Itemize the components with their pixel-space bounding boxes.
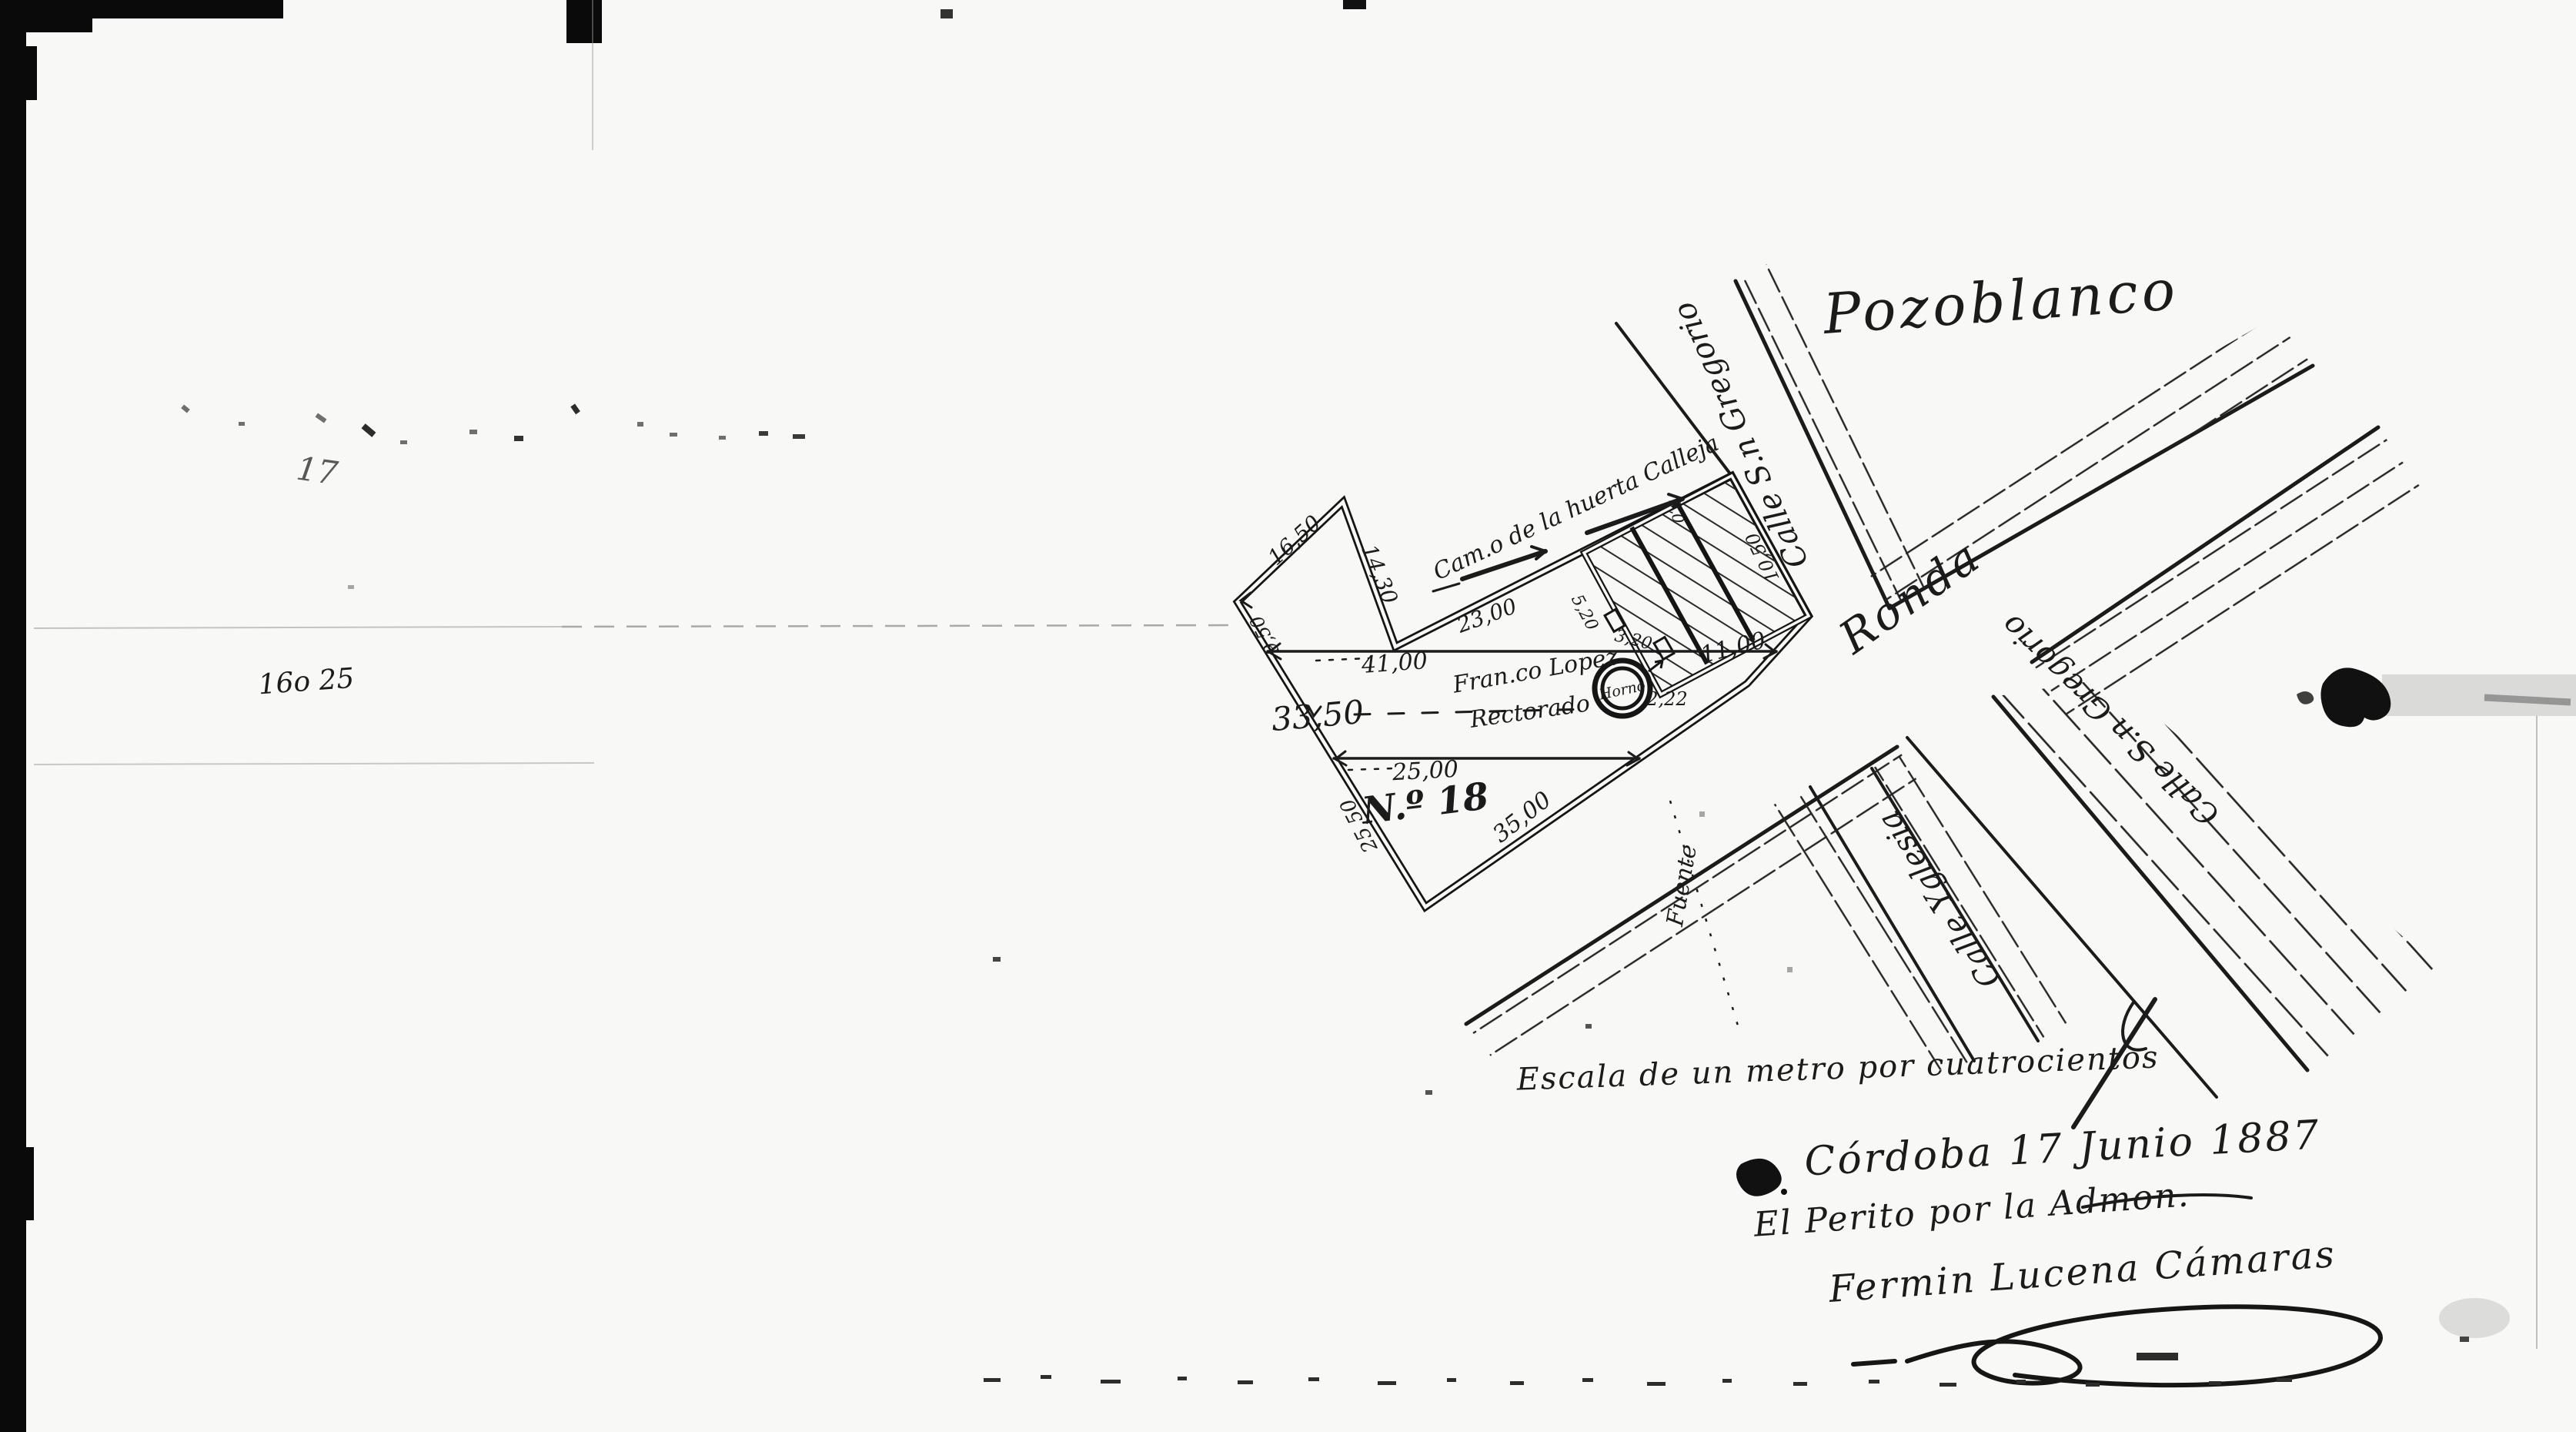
measure-41-00: 41,00 (1361, 650, 1428, 678)
archive-number: 16o 25 (258, 665, 356, 700)
measure-33-50: 33,50 (1270, 696, 1365, 736)
faint-margin-number: 17 (295, 452, 340, 490)
scanned-plan-page: Pozoblanco Ronda Calle S.n Gregorio Call… (0, 0, 2576, 1432)
signature-flourish (1853, 1307, 2381, 1385)
measure-25-00: 25,00 (1392, 758, 1458, 785)
fold-lines (34, 625, 1236, 765)
measure-9-0: 9,0 (1666, 497, 1686, 524)
measure-2-22: 2,22 (1646, 690, 1687, 708)
